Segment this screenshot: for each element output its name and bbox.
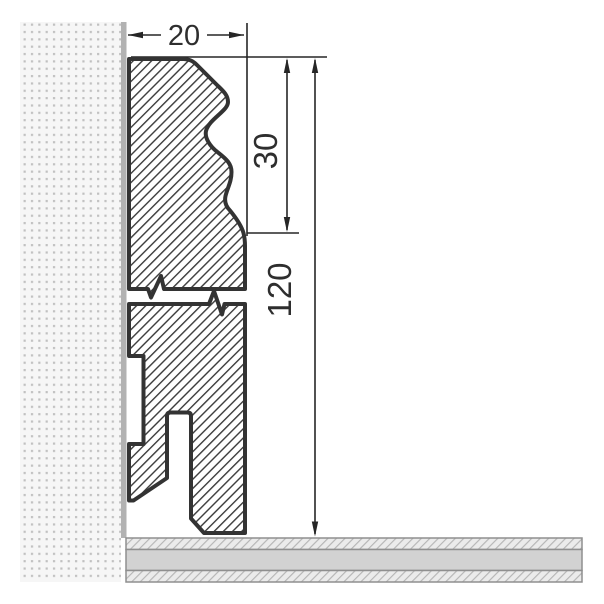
floor-top-layer xyxy=(126,538,582,550)
upper-height-arrow-bottom xyxy=(284,217,290,232)
width-dim-label: 20 xyxy=(168,20,200,52)
wall-surface-strip xyxy=(121,22,127,538)
floor-bottom-layer xyxy=(126,571,582,583)
skirting-profile-lower xyxy=(129,291,245,533)
floor-middle-layer xyxy=(126,550,582,571)
dimension-width: 20 xyxy=(128,20,244,52)
total-height-arrow-bottom xyxy=(312,522,318,537)
upper-height-dim-label: 30 xyxy=(247,133,284,170)
wall-texture xyxy=(20,22,121,582)
total-height-dim-label: 120 xyxy=(261,262,298,317)
skirting-profile-upper xyxy=(129,59,245,298)
width-arrow-right xyxy=(229,32,244,38)
width-arrow-left xyxy=(128,32,143,38)
skirting-board-section-drawing: 20 30 120 xyxy=(0,0,604,604)
upper-height-arrow-top xyxy=(284,58,290,73)
total-height-arrow-top xyxy=(312,58,318,73)
dimension-total-height: 120 xyxy=(261,58,318,537)
floor-layers xyxy=(126,538,582,582)
dimension-upper-height: 30 xyxy=(247,58,290,232)
technical-drawing-page: 20 30 120 xyxy=(0,0,604,604)
